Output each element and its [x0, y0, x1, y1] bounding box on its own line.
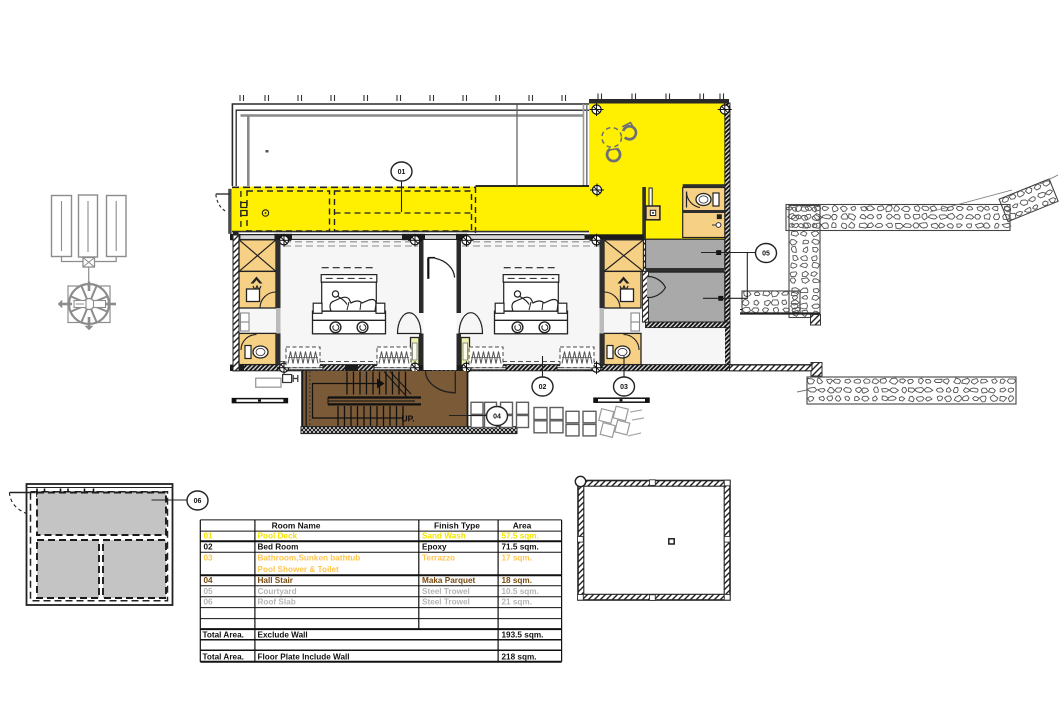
svg-text:02: 02 — [204, 543, 214, 552]
svg-text:02: 02 — [539, 384, 547, 391]
svg-text:21 sqm.: 21 sqm. — [502, 598, 533, 607]
svg-text:10.5 sqm.: 10.5 sqm. — [502, 587, 539, 596]
svg-text:17 sqm.: 17 sqm. — [502, 554, 533, 563]
svg-text:UP.: UP. — [402, 414, 415, 424]
svg-text:06: 06 — [194, 498, 202, 505]
svg-text:Roof Slab: Roof Slab — [258, 598, 296, 607]
svg-text:03: 03 — [204, 554, 214, 563]
svg-text:Pool Shower & Toilet: Pool Shower & Toilet — [258, 565, 340, 574]
svg-text:Pool Deck: Pool Deck — [258, 532, 298, 541]
svg-text:Bed Room: Bed Room — [258, 543, 299, 552]
svg-text:Total Area.: Total Area. — [203, 652, 244, 661]
svg-text:18 sqm.: 18 sqm. — [502, 576, 533, 585]
svg-text:04: 04 — [204, 576, 214, 585]
svg-text:Steel Trowel: Steel Trowel — [422, 598, 470, 607]
svg-text:Courtyard: Courtyard — [258, 587, 297, 596]
svg-text:Finish Type: Finish Type — [434, 521, 480, 531]
svg-text:Steel Trowel: Steel Trowel — [422, 587, 470, 596]
svg-text:Bathroom,Sunken bathtub: Bathroom,Sunken bathtub — [258, 554, 361, 563]
svg-text:Floor Plate Include Wall: Floor Plate Include Wall — [258, 652, 350, 661]
svg-text:218 sqm.: 218 sqm. — [502, 652, 537, 661]
svg-text:Maka Parquet: Maka Parquet — [422, 576, 476, 585]
svg-text:Sand Wash: Sand Wash — [422, 532, 466, 541]
svg-text:04: 04 — [493, 414, 501, 421]
svg-text:01: 01 — [204, 532, 214, 541]
svg-text:Epoxy: Epoxy — [422, 543, 447, 552]
svg-text:Hall Stair: Hall Stair — [258, 576, 294, 585]
svg-text:05: 05 — [204, 587, 214, 596]
svg-text:Total Area.: Total Area. — [203, 630, 244, 639]
svg-text:57.5 sqm.: 57.5 sqm. — [502, 532, 539, 541]
svg-text:193.5 sqm.: 193.5 sqm. — [502, 630, 544, 639]
svg-text:03: 03 — [620, 384, 628, 391]
svg-text:Terrazzo: Terrazzo — [422, 554, 455, 563]
svg-text:01: 01 — [398, 169, 406, 176]
svg-text:Area: Area — [513, 521, 532, 531]
svg-text:06: 06 — [204, 598, 214, 607]
svg-text:05: 05 — [762, 251, 770, 258]
svg-text:Exclude Wall: Exclude Wall — [258, 630, 308, 639]
svg-text:71.5 sqm.: 71.5 sqm. — [502, 543, 539, 552]
svg-text:Room Name: Room Name — [272, 521, 321, 531]
